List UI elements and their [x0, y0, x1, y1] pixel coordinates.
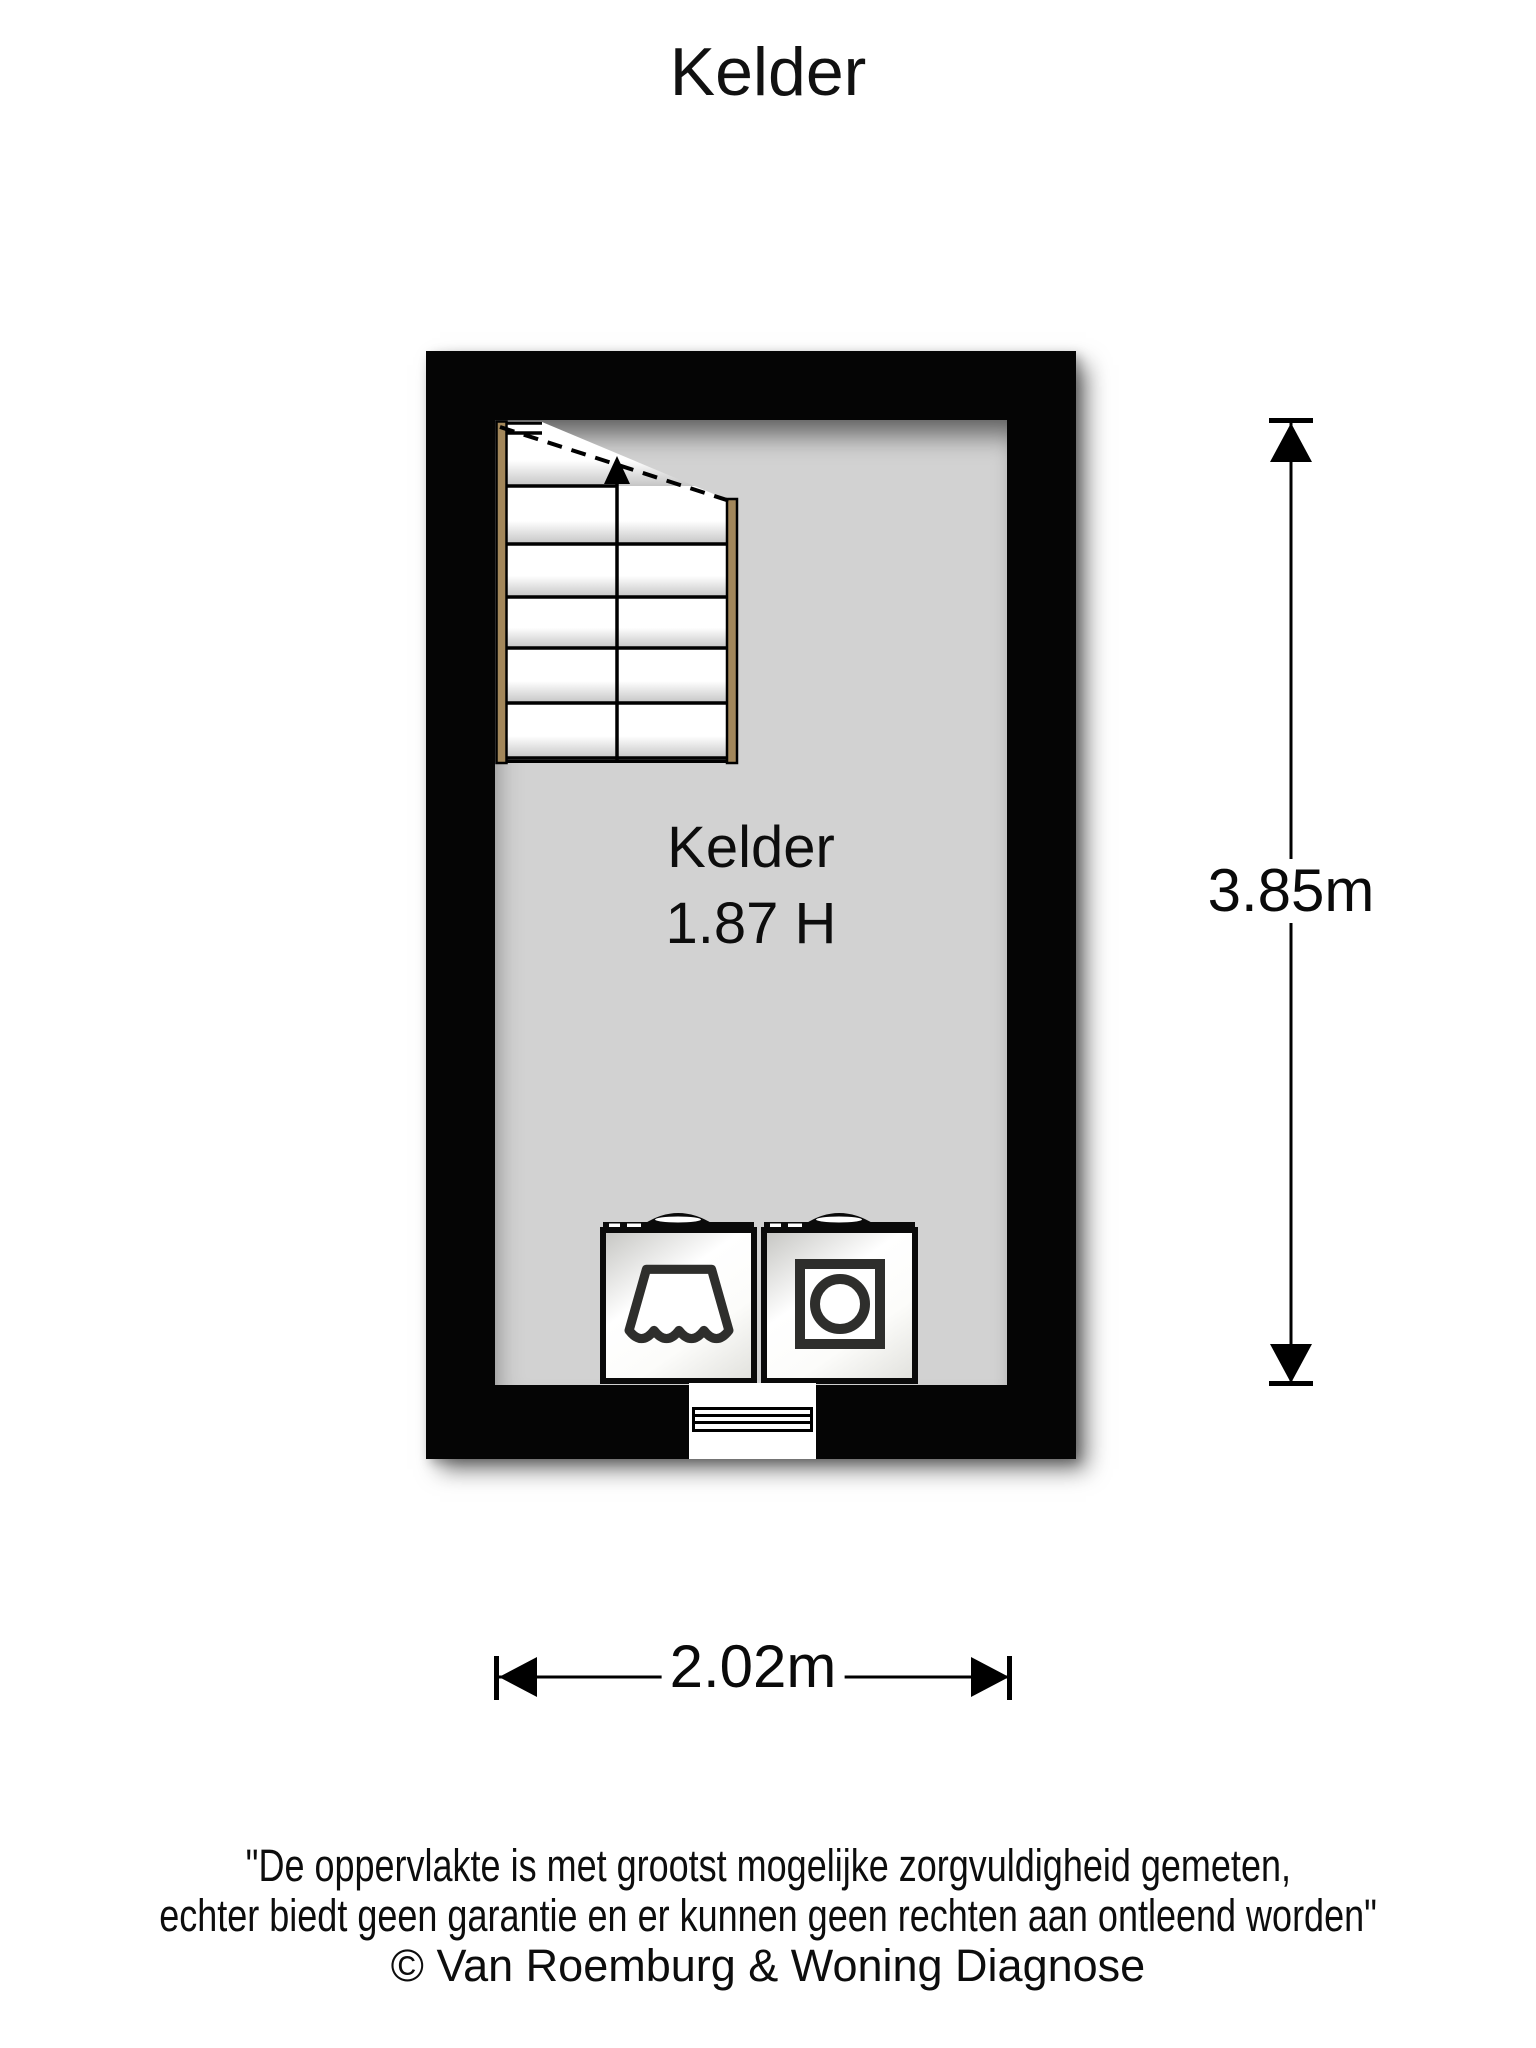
page-title: Kelder	[0, 36, 1536, 108]
stair-stringer-left	[497, 422, 507, 764]
disclaimer-line2: echter biedt geen garantie en er kunnen …	[0, 1891, 1536, 1941]
sink-icon	[623, 1259, 735, 1353]
room-floor: Kelder 1.87 H	[495, 420, 1007, 1385]
threshold-step-line	[695, 1414, 810, 1417]
width-dimension-label: 2.02m	[662, 1635, 845, 1699]
room-label-block: Kelder 1.87 H	[495, 810, 1007, 962]
copyright-line: © Van Roemburg & Woning Diagnose	[0, 1941, 1536, 1991]
washing-machine-appliance	[761, 1227, 918, 1384]
room-height-label: 1.87 H	[495, 886, 1007, 962]
disclaimer: "De oppervlakte is met grootst mogelijke…	[0, 1841, 1536, 1991]
sink-body	[600, 1227, 757, 1384]
stair-stringer-right	[727, 499, 737, 763]
threshold-steps	[692, 1407, 813, 1432]
sink-appliance	[600, 1227, 757, 1384]
disclaimer-line1: "De oppervlakte is met grootst mogelijke…	[0, 1841, 1536, 1891]
room-name-label: Kelder	[495, 810, 1007, 886]
threshold-step-line	[695, 1421, 810, 1424]
washing-machine-icon	[787, 1253, 893, 1359]
washing-machine-body	[761, 1227, 918, 1384]
height-dimension-label: 3.85m	[1200, 859, 1383, 923]
door-threshold	[689, 1383, 816, 1459]
floorplan-page: Kelder	[0, 0, 1536, 2048]
floorplan: Kelder 1.87 H	[426, 351, 1076, 1459]
staircase	[495, 420, 740, 765]
